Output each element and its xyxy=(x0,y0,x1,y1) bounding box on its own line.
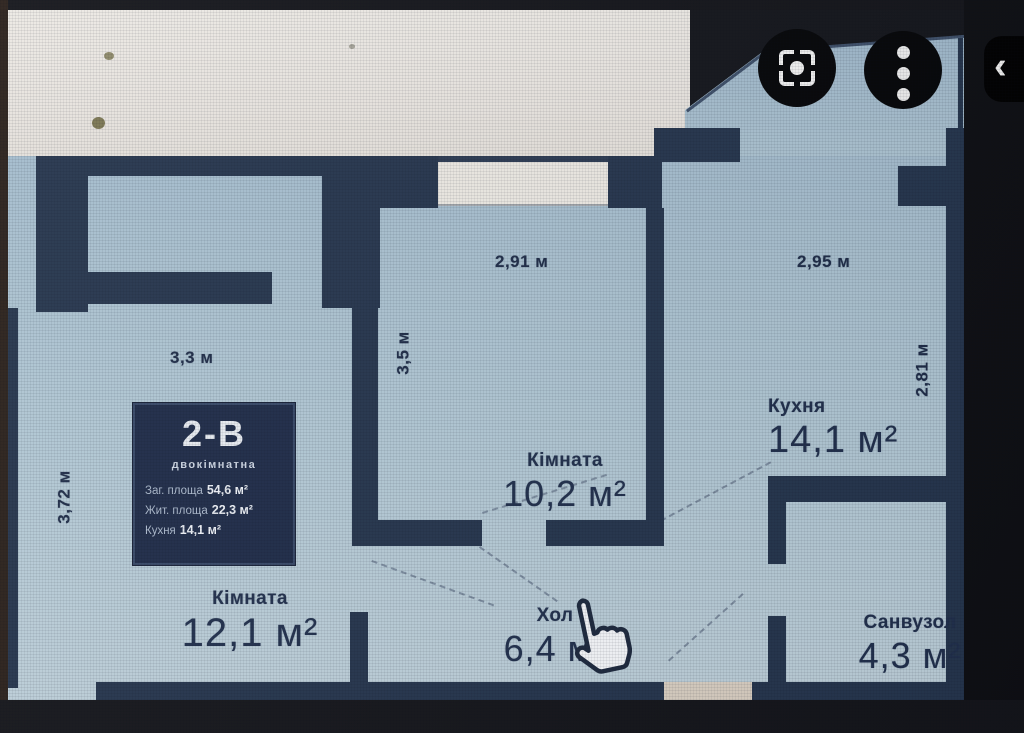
wall xyxy=(768,476,786,564)
unit-specs: Заг. площа54,6 м² Жит. площа22,3 м² Кухн… xyxy=(133,483,295,537)
room-label-bedroom2: Кімната 10,2 м² xyxy=(480,450,650,515)
wall xyxy=(380,156,438,208)
room-name: Кімната xyxy=(160,588,340,610)
wall xyxy=(322,156,380,308)
wall xyxy=(752,682,964,700)
dust-speck xyxy=(349,44,355,49)
focus-scan-icon xyxy=(779,50,815,86)
spec-value: 54,6 м² xyxy=(207,483,248,497)
unit-card: 2-В двокімнатна Заг. площа54,6 м² Жит. п… xyxy=(133,403,295,565)
wall xyxy=(768,476,946,502)
spec-label: Кухня xyxy=(145,525,176,537)
room-label-kitchen: Кухня 14,1 м² xyxy=(768,396,948,462)
dimension-label: 3,3 м xyxy=(170,348,213,368)
unit-type-label: двокімнатна xyxy=(133,459,295,471)
dust-speck xyxy=(92,117,105,129)
left-bezel xyxy=(0,0,8,733)
wall xyxy=(378,520,482,546)
spec-value: 14,1 м² xyxy=(180,523,221,537)
entrance-doorway xyxy=(664,682,752,700)
wall xyxy=(768,616,786,688)
wall xyxy=(608,156,662,208)
spec-row-kitchen-area: Кухня14,1 м² xyxy=(145,523,283,537)
wall xyxy=(8,308,18,688)
wall xyxy=(352,308,378,546)
dimension-label: 2,91 м xyxy=(495,252,548,272)
focus-scan-button[interactable] xyxy=(758,29,836,107)
wall xyxy=(654,128,740,162)
top-bezel xyxy=(0,0,1024,10)
dimension-label: 2,81 м xyxy=(913,343,933,396)
spec-row-living-area: Жит. площа22,3 м² xyxy=(145,503,283,517)
room-name: Кімната xyxy=(480,450,650,472)
bottom-bezel: 400 × 300 xyxy=(0,700,1024,733)
wall xyxy=(350,612,368,686)
menu-button[interactable] xyxy=(864,31,942,109)
wall xyxy=(546,520,664,546)
spec-row-total-area: Заг. площа54,6 м² xyxy=(145,483,283,497)
room-area: 10,2 м² xyxy=(480,473,650,515)
dimension-label: 3,5 м xyxy=(394,331,414,374)
window xyxy=(438,156,608,206)
chevron-left-icon: ‹ xyxy=(994,45,1007,87)
dimension-label: 2,95 м xyxy=(797,252,850,272)
back-button[interactable]: ‹ xyxy=(984,36,1024,102)
room-area: 14,1 м² xyxy=(768,419,948,462)
hand-cursor xyxy=(560,590,638,685)
unit-code: 2-В xyxy=(133,413,295,455)
dimension-label: 3,72 м xyxy=(55,470,75,523)
wall xyxy=(36,156,88,312)
kebab-menu-icon xyxy=(897,46,910,101)
dust-speck xyxy=(104,52,114,60)
plan-paper-margin xyxy=(8,10,690,156)
room-area: 12,1 м² xyxy=(160,611,340,656)
wall xyxy=(958,38,963,130)
wall xyxy=(88,272,272,304)
screen-photo: 3,3 м 2,91 м 2,95 м 3,72 м 3,5 м 2,81 м … xyxy=(0,0,1024,733)
spec-label: Заг. площа xyxy=(145,485,203,497)
room-name: Кухня xyxy=(768,396,948,418)
room-label-bedroom1: Кімната 12,1 м² xyxy=(160,588,340,656)
right-sidebar xyxy=(964,0,1024,733)
spec-label: Жит. площа xyxy=(145,505,208,517)
spec-value: 22,3 м² xyxy=(212,503,253,517)
